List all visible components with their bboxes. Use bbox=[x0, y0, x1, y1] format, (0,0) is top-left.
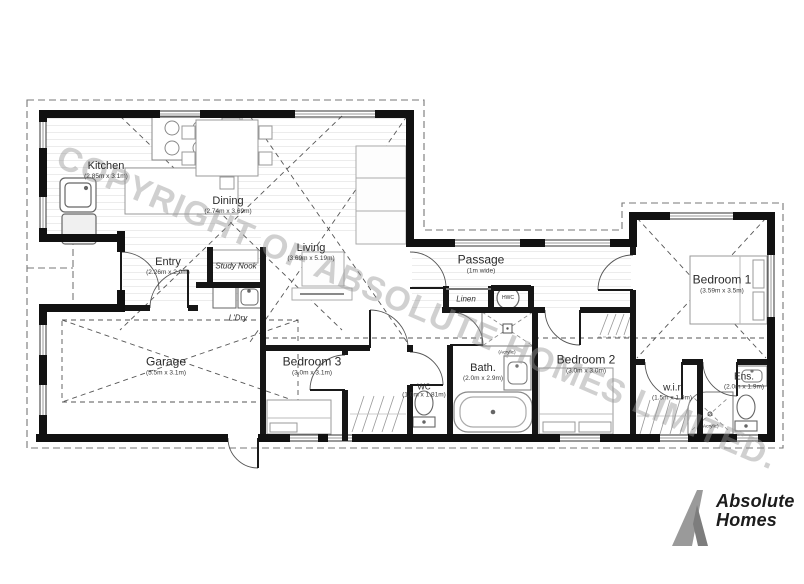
logo-text: Absolute Homes bbox=[716, 492, 795, 530]
room-label-wc: WC(1.0m x 1.81m) bbox=[402, 383, 446, 400]
room-name-bedroom1: Bedroom 1 bbox=[693, 273, 752, 287]
room-label-ens: Ens.(2.0m x 1.9m) bbox=[724, 372, 764, 391]
room-dims-kitchen: (2.85m x 3.1m) bbox=[84, 173, 128, 180]
room-name-living: Living bbox=[287, 242, 334, 255]
room-name-wir: w.i.r bbox=[652, 383, 692, 395]
room-name-entry: Entry bbox=[146, 256, 190, 269]
room-dims-wir: (1.5m x 1.9m) bbox=[652, 394, 692, 401]
room-dims-bedroom3: (3.0m x 3.1m) bbox=[283, 369, 342, 376]
room-name-kitchen: Kitchen bbox=[84, 160, 128, 173]
room-name-bedroom2: Bedroom 2 bbox=[557, 353, 616, 367]
room-name-ens: Ens. bbox=[724, 372, 764, 384]
room-label-entry: Entry(2.26m x 2.0m) bbox=[146, 256, 190, 276]
room-name-bath: Bath. bbox=[463, 362, 503, 375]
room-name-garage: Garage bbox=[146, 355, 186, 369]
floorplan-page: COPYRIGHT OF ABSOLUTE HOMES LIMITED. Kit… bbox=[0, 0, 804, 584]
room-label-wir: w.i.r(1.5m x 1.9m) bbox=[652, 383, 692, 402]
annotation-hwc: HWC bbox=[502, 295, 514, 301]
annotation-ldry: L'Dry bbox=[229, 314, 247, 323]
room-name-dining: Dining bbox=[204, 195, 251, 208]
room-dims-garage: (5.5m x 3.1m) bbox=[146, 369, 186, 376]
annotation-linen: Linen bbox=[456, 295, 476, 304]
room-dims-wc: (1.0m x 1.81m) bbox=[402, 392, 446, 399]
room-label-bedroom3: Bedroom 3(3.0m x 3.1m) bbox=[283, 355, 342, 376]
room-label-dining: Dining(2.74m x 3.69m) bbox=[204, 195, 251, 215]
annotation-study-nook: Study Nook bbox=[215, 262, 256, 271]
room-dims-bedroom1: (3.59m x 3.5m) bbox=[693, 287, 752, 294]
room-dims-living: (3.69m x 5.19m) bbox=[287, 255, 334, 262]
logo-line1: Absolute bbox=[716, 492, 795, 511]
room-label-living: Living(3.69m x 5.19m) bbox=[287, 242, 334, 262]
room-dims-entry: (2.26m x 2.0m) bbox=[146, 269, 190, 276]
room-label-bedroom1: Bedroom 1(3.59m x 3.5m) bbox=[693, 273, 752, 294]
room-dims-ens: (2.0m x 1.9m) bbox=[724, 383, 764, 390]
room-label-bath: Bath.(2.0m x 2.9m) bbox=[463, 362, 503, 382]
annotation-acrylic-ens: (Acrylic) bbox=[701, 425, 718, 430]
room-dims-bath: (2.0m x 2.9m) bbox=[463, 375, 503, 382]
room-label-garage: Garage(5.5m x 3.1m) bbox=[146, 355, 186, 376]
room-name-wc: WC bbox=[402, 383, 446, 392]
room-name-passage: Passage bbox=[458, 253, 505, 267]
room-dims-bedroom2: (3.0m x 3.0m) bbox=[557, 367, 616, 374]
room-dims-passage: (1m wide) bbox=[458, 267, 505, 274]
company-logo: Absolute Homes bbox=[668, 486, 798, 552]
logo-a-mark bbox=[668, 486, 716, 548]
room-dims-dining: (2.74m x 3.69m) bbox=[204, 208, 251, 215]
annotation-acrylic-bath: (Acrylic) bbox=[498, 351, 515, 356]
logo-line2: Homes bbox=[716, 511, 795, 530]
room-name-bedroom3: Bedroom 3 bbox=[283, 355, 342, 369]
room-label-kitchen: Kitchen(2.85m x 3.1m) bbox=[84, 160, 128, 180]
room-label-passage: Passage(1m wide) bbox=[458, 253, 505, 274]
room-label-bedroom2: Bedroom 2(3.0m x 3.0m) bbox=[557, 353, 616, 374]
